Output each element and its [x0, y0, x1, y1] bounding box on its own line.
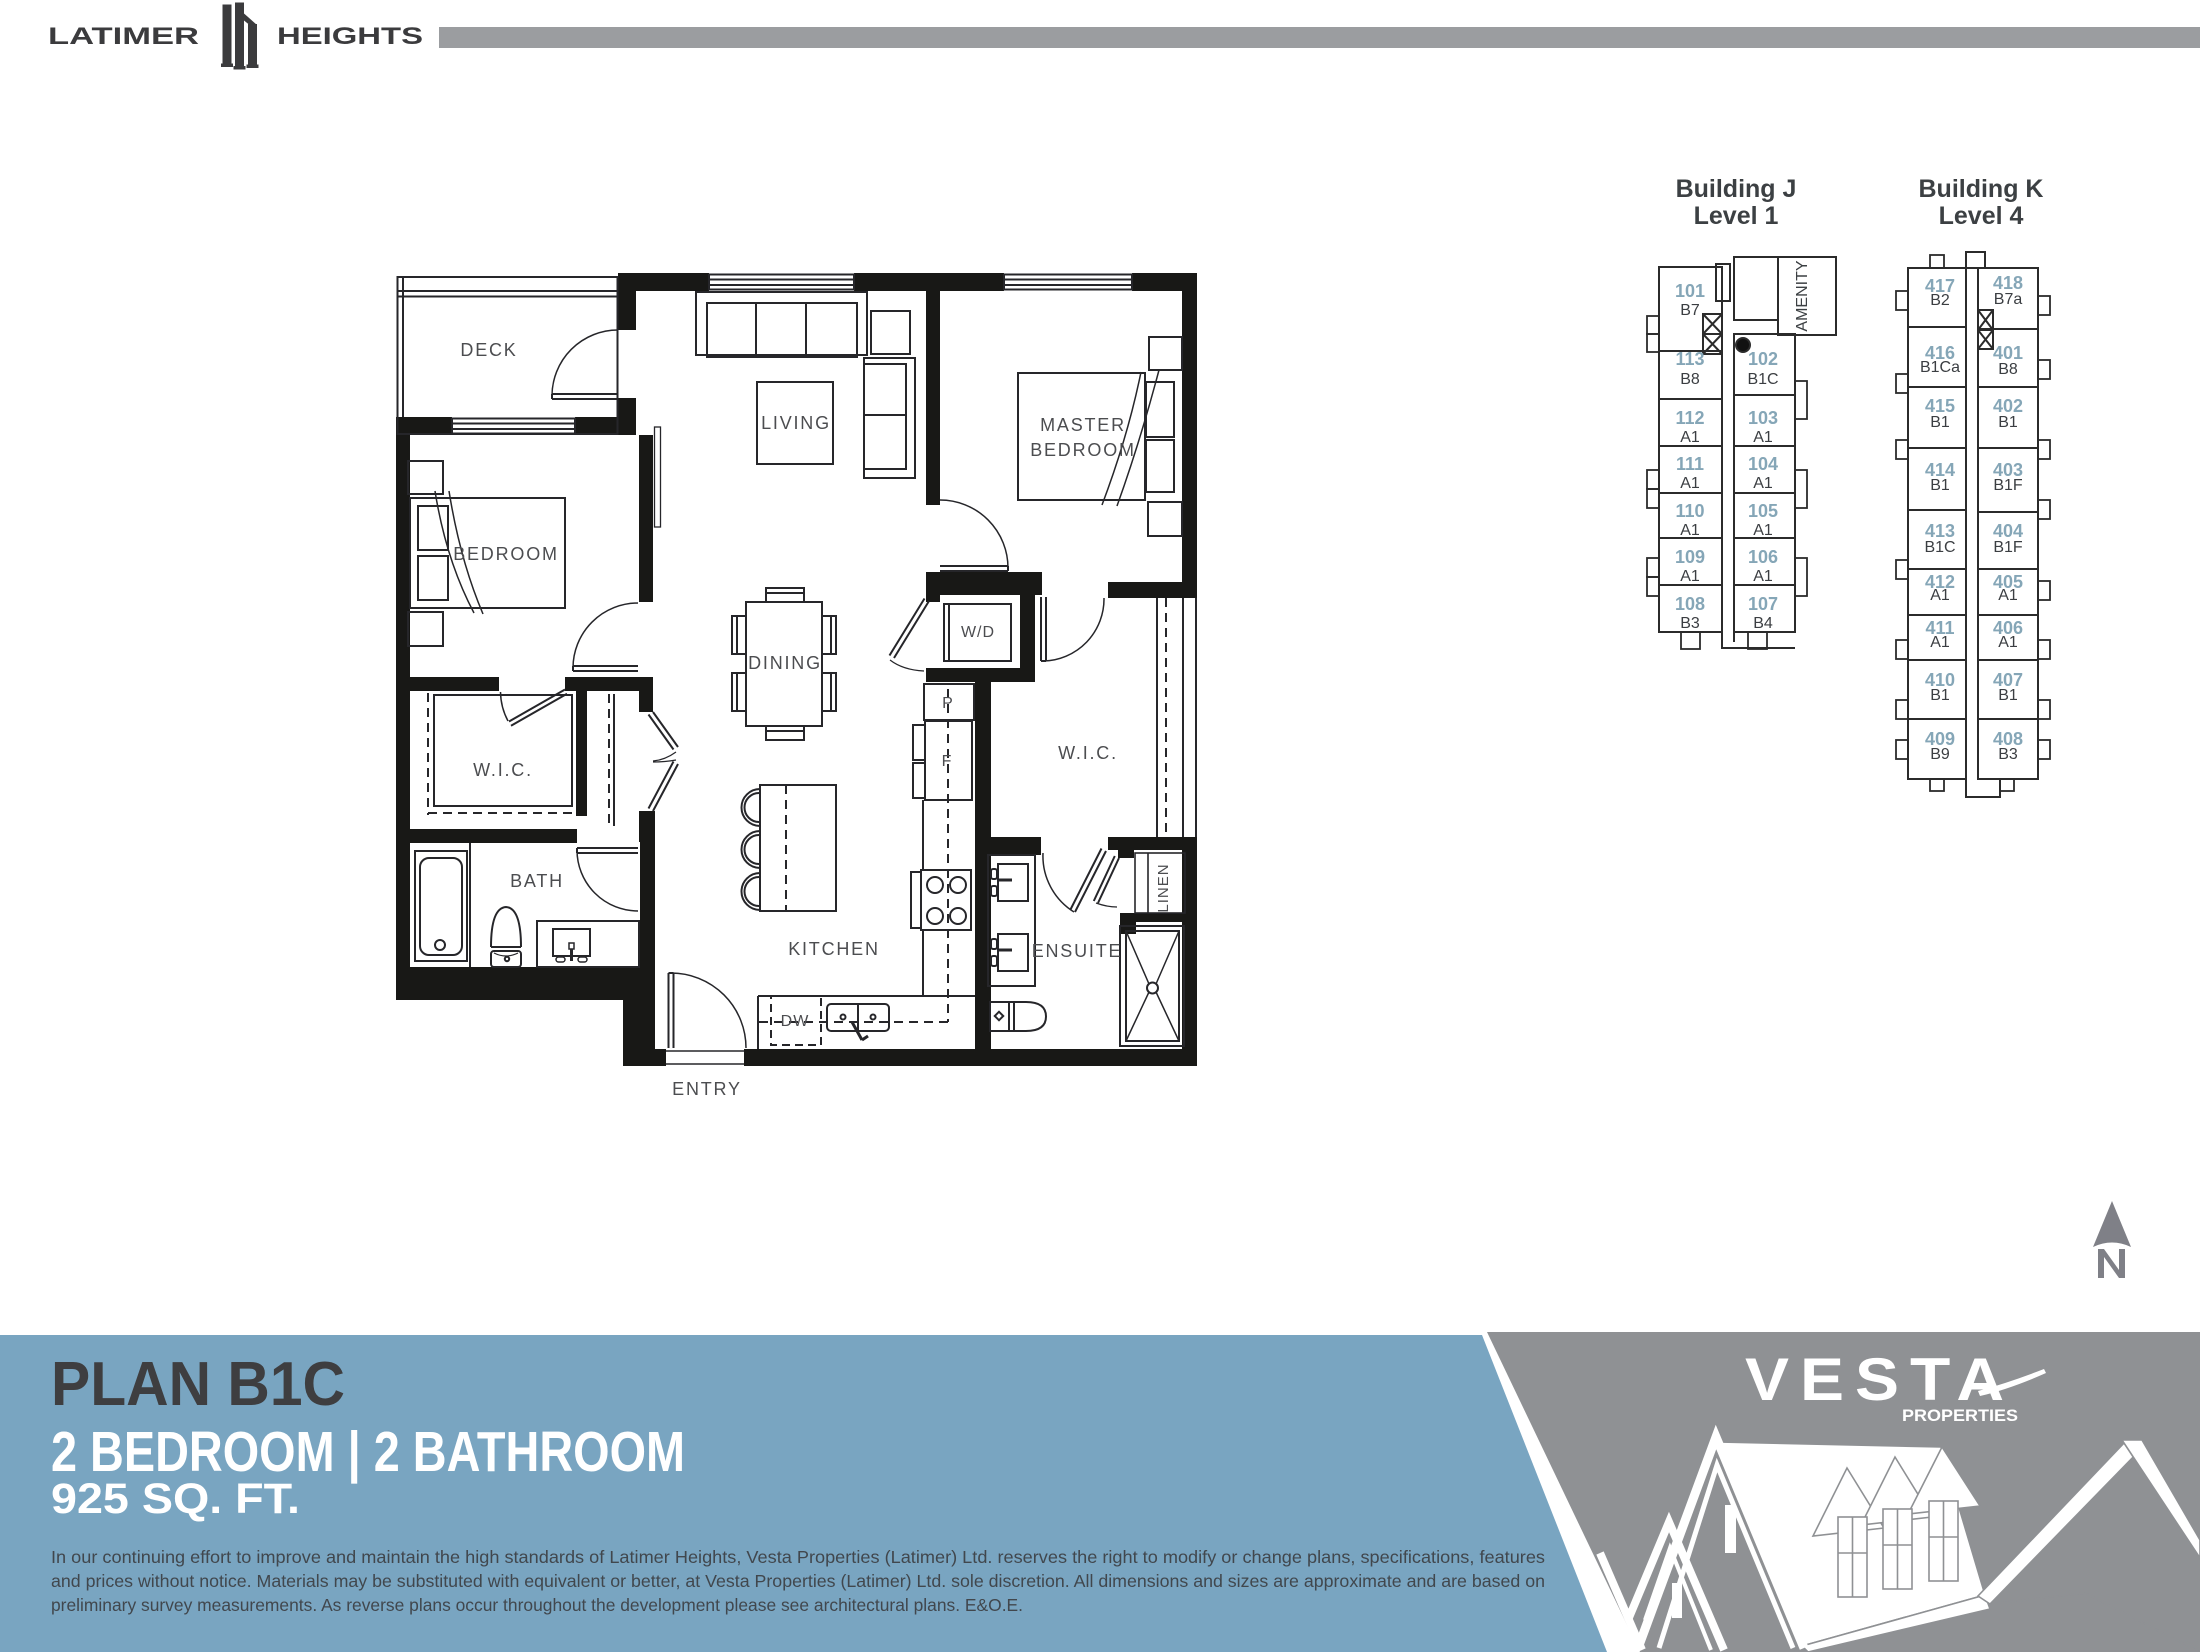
svg-text:B7: B7: [1680, 302, 1700, 319]
svg-text:B8: B8: [1998, 361, 2018, 378]
svg-text:B2: B2: [1930, 292, 1950, 309]
svg-text:preliminary survey measurement: preliminary survey measurements. As reve…: [51, 1595, 1023, 1615]
svg-text:111: 111: [1676, 454, 1704, 474]
svg-text:W.I.C.: W.I.C.: [473, 760, 533, 780]
svg-text:PLAN B1C: PLAN B1C: [51, 1350, 345, 1419]
svg-text:106: 106: [1748, 547, 1778, 567]
svg-text:BEDROOM: BEDROOM: [1030, 440, 1136, 460]
svg-text:113: 113: [1675, 349, 1704, 369]
svg-text:402: 402: [1993, 396, 2023, 416]
svg-text:B1Ca: B1Ca: [1920, 359, 1960, 376]
svg-text:418: 418: [1993, 273, 2023, 293]
svg-text:Building K: Building K: [1919, 175, 2044, 203]
svg-text:P: P: [942, 695, 954, 712]
svg-text:B4: B4: [1753, 615, 1773, 632]
svg-text:DINING: DINING: [748, 653, 822, 673]
svg-text:B3: B3: [1998, 746, 2018, 763]
svg-text:Level 1: Level 1: [1694, 202, 1779, 230]
svg-text:and prices without notice. Mat: and prices without notice. Materials may…: [51, 1571, 1545, 1591]
svg-text:415: 415: [1925, 396, 1955, 416]
svg-text:DECK: DECK: [460, 340, 517, 360]
svg-text:ENSUITE: ENSUITE: [1032, 941, 1123, 961]
svg-text:401: 401: [1993, 343, 2023, 363]
svg-text:AMENITY: AMENITY: [1794, 260, 1811, 331]
svg-text:B1: B1: [1998, 414, 2018, 431]
svg-text:BATH: BATH: [510, 871, 564, 891]
svg-text:104: 104: [1748, 454, 1778, 474]
svg-text:B1F: B1F: [1993, 539, 2023, 556]
svg-text:B1C: B1C: [1747, 371, 1778, 388]
svg-text:105: 105: [1748, 501, 1778, 521]
svg-text:B3: B3: [1680, 615, 1700, 632]
svg-text:W/D: W/D: [961, 624, 995, 641]
svg-text:ENTRY: ENTRY: [672, 1079, 742, 1099]
svg-text:W.I.C.: W.I.C.: [1058, 743, 1118, 763]
svg-text:925 SQ. FT.: 925 SQ. FT.: [51, 1475, 300, 1523]
svg-text:B1: B1: [1930, 477, 1950, 494]
svg-text:MASTER: MASTER: [1040, 415, 1126, 435]
svg-text:LIVING: LIVING: [761, 413, 831, 433]
svg-text:108: 108: [1675, 594, 1705, 614]
svg-text:B1C: B1C: [1924, 539, 1955, 556]
svg-text:A1: A1: [1998, 634, 2018, 651]
svg-text:LINEN: LINEN: [1155, 863, 1172, 912]
svg-text:F: F: [942, 753, 953, 770]
svg-text:A1: A1: [1753, 568, 1773, 585]
svg-text:A1: A1: [1753, 475, 1773, 492]
svg-text:A1: A1: [1930, 634, 1950, 651]
svg-text:BEDROOM: BEDROOM: [453, 544, 559, 564]
svg-text:A1: A1: [1680, 568, 1700, 585]
svg-text:B9: B9: [1930, 746, 1950, 763]
svg-text:404: 404: [1993, 521, 2023, 541]
svg-text:A1: A1: [1998, 587, 2018, 604]
svg-text:In our continuing effort to im: In our continuing effort to improve and …: [51, 1547, 1545, 1567]
svg-text:B1: B1: [1930, 414, 1950, 431]
svg-text:Building J: Building J: [1676, 175, 1797, 203]
svg-text:103: 103: [1748, 408, 1778, 428]
svg-text:413: 413: [1925, 521, 1955, 541]
svg-text:B1F: B1F: [1993, 477, 2023, 494]
svg-text:B1: B1: [1930, 687, 1950, 704]
svg-text:B1: B1: [1998, 687, 2018, 704]
svg-text:101: 101: [1675, 281, 1705, 301]
svg-text:A1: A1: [1753, 522, 1773, 539]
svg-text:A1: A1: [1753, 429, 1773, 446]
svg-text:A1: A1: [1680, 429, 1700, 446]
svg-text:112: 112: [1675, 408, 1704, 428]
svg-text:Level 4: Level 4: [1939, 202, 2024, 230]
svg-text:DW: DW: [781, 1013, 810, 1030]
svg-text:A1: A1: [1680, 475, 1700, 492]
svg-text:B8: B8: [1680, 371, 1700, 388]
svg-text:107: 107: [1748, 594, 1778, 614]
svg-text:A1: A1: [1930, 587, 1950, 604]
svg-text:109: 109: [1675, 547, 1705, 567]
svg-text:102: 102: [1748, 349, 1778, 369]
svg-text:A1: A1: [1680, 522, 1700, 539]
svg-text:KITCHEN: KITCHEN: [788, 939, 880, 959]
svg-text:110: 110: [1675, 501, 1704, 521]
svg-text:B7a: B7a: [1994, 291, 2023, 308]
